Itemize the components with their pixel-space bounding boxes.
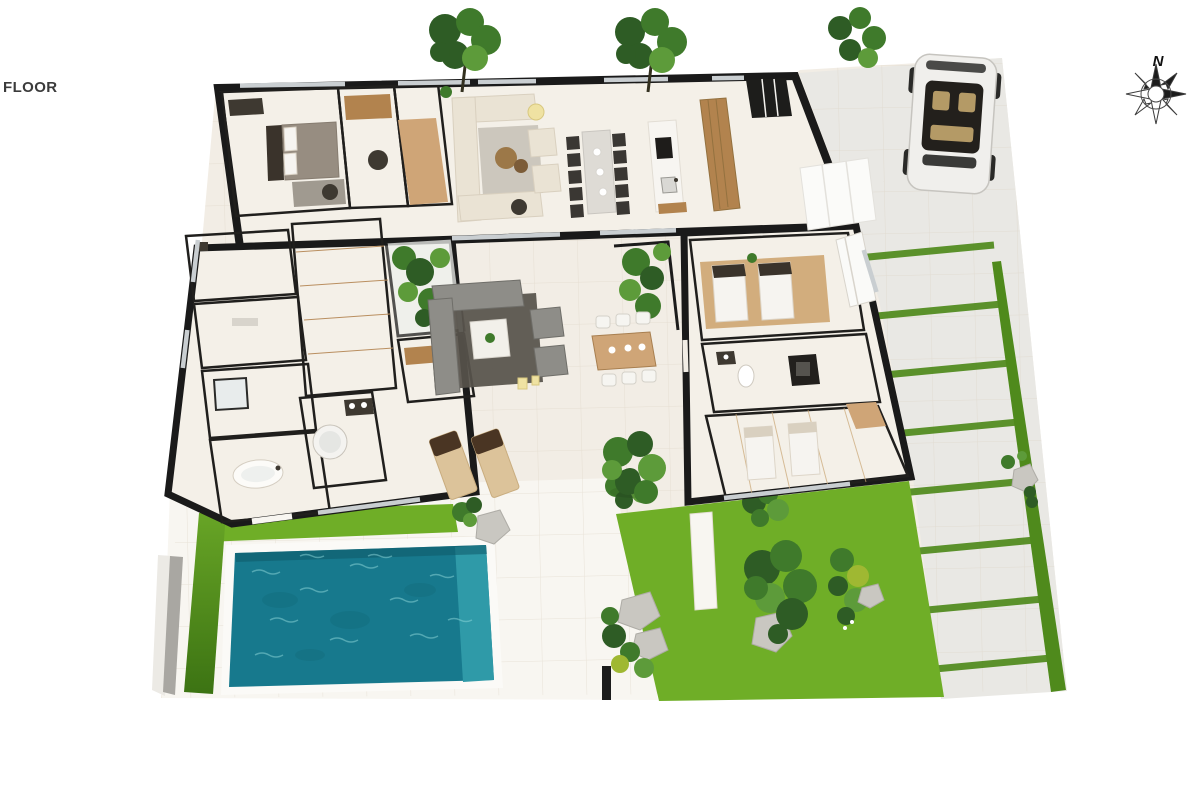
cooktop: [655, 137, 673, 159]
floor-plan-svg: N: [0, 0, 1200, 800]
coffee-table: [495, 147, 517, 169]
floor-plan-image: FLOOR: [0, 0, 1200, 800]
compass-north-label: N: [1153, 53, 1165, 70]
toilet: [738, 365, 754, 387]
garden-slab-path: [690, 512, 717, 610]
compass-icon: N: [1126, 53, 1186, 124]
floor-lamp: [528, 104, 544, 120]
parked-car: [901, 53, 1002, 195]
garden-lamp-post: [602, 666, 611, 700]
tree: [828, 7, 886, 68]
lantern: [532, 376, 539, 385]
dining-area: [566, 130, 630, 218]
patio-armchair: [530, 307, 564, 339]
hall-cabinets: [800, 158, 876, 230]
patio-armchair: [534, 345, 568, 377]
armchair: [532, 164, 561, 193]
lantern: [518, 378, 527, 389]
outdoor-table: [592, 332, 656, 370]
front-door: [746, 78, 792, 118]
armchair: [528, 128, 557, 157]
side-table: [511, 199, 527, 215]
car-cabin: [921, 80, 984, 154]
